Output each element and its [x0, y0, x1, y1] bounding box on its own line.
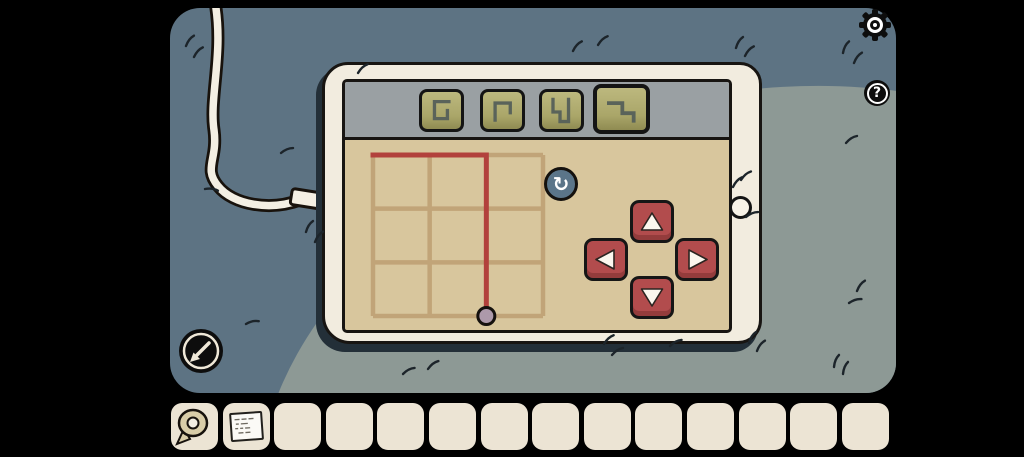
- tablet-screen: ↻: [342, 79, 732, 333]
- inventory-slot-13[interactable]: [790, 403, 837, 450]
- inventory-slot-10[interactable]: [635, 403, 682, 450]
- maze-pattern-3-icon: [542, 92, 581, 129]
- inventory-slot-2[interactable]: [223, 403, 270, 450]
- pattern-button-2[interactable]: [480, 89, 525, 132]
- arrow-up-icon: [637, 208, 667, 235]
- inventory-slot-4[interactable]: [326, 403, 373, 450]
- inventory-slot-14[interactable]: [842, 403, 889, 450]
- inventory-bar: [171, 403, 889, 450]
- question-mark-icon: ?: [873, 85, 881, 101]
- rotate-button[interactable]: ↻: [544, 167, 578, 201]
- inventory-slot-12[interactable]: [739, 403, 786, 450]
- path-dot[interactable]: [478, 308, 495, 325]
- dpad-down-button[interactable]: [630, 276, 674, 319]
- exit-button[interactable]: [178, 328, 224, 374]
- maze-pattern-4-icon: [597, 88, 646, 130]
- maze-pattern-2-icon: [483, 92, 522, 129]
- inventory-slot-11[interactable]: [687, 403, 734, 450]
- pattern-button-1[interactable]: [419, 89, 464, 132]
- rotate-icon: ↻: [553, 174, 570, 194]
- arrow-right-icon: [682, 246, 712, 273]
- inventory-slot-3[interactable]: [274, 403, 321, 450]
- dpad-up-button[interactable]: [630, 200, 674, 243]
- dpad-left-button[interactable]: [584, 238, 628, 281]
- maze-pattern-1-icon: [422, 92, 461, 129]
- settings-button[interactable]: [858, 8, 892, 42]
- help-button[interactable]: ?: [864, 80, 890, 106]
- dpad-right-button[interactable]: [675, 238, 719, 281]
- paper-note-item[interactable]: [223, 403, 270, 450]
- inventory-slot-9[interactable]: [584, 403, 631, 450]
- home-button[interactable]: [729, 196, 752, 219]
- tape-roll-item[interactable]: [171, 403, 218, 450]
- pattern-button-3[interactable]: [539, 89, 584, 132]
- arrow-left-icon: [591, 246, 621, 273]
- inventory-slot-5[interactable]: [377, 403, 424, 450]
- pattern-button-bar: [345, 82, 729, 140]
- pattern-button-4[interactable]: [593, 84, 650, 134]
- inventory-slot-7[interactable]: [481, 403, 528, 450]
- inventory-slot-8[interactable]: [532, 403, 579, 450]
- arrow-down-icon: [637, 284, 667, 311]
- inventory-slot-6[interactable]: [429, 403, 476, 450]
- puzzle-area[interactable]: ↻: [345, 140, 729, 330]
- inventory-slot-1[interactable]: [171, 403, 218, 450]
- gear-icon: [858, 8, 892, 42]
- tablet-device: ↻: [322, 62, 762, 344]
- arrow-down-left-icon: [178, 328, 224, 374]
- stage: ↻ ?: [0, 0, 1024, 457]
